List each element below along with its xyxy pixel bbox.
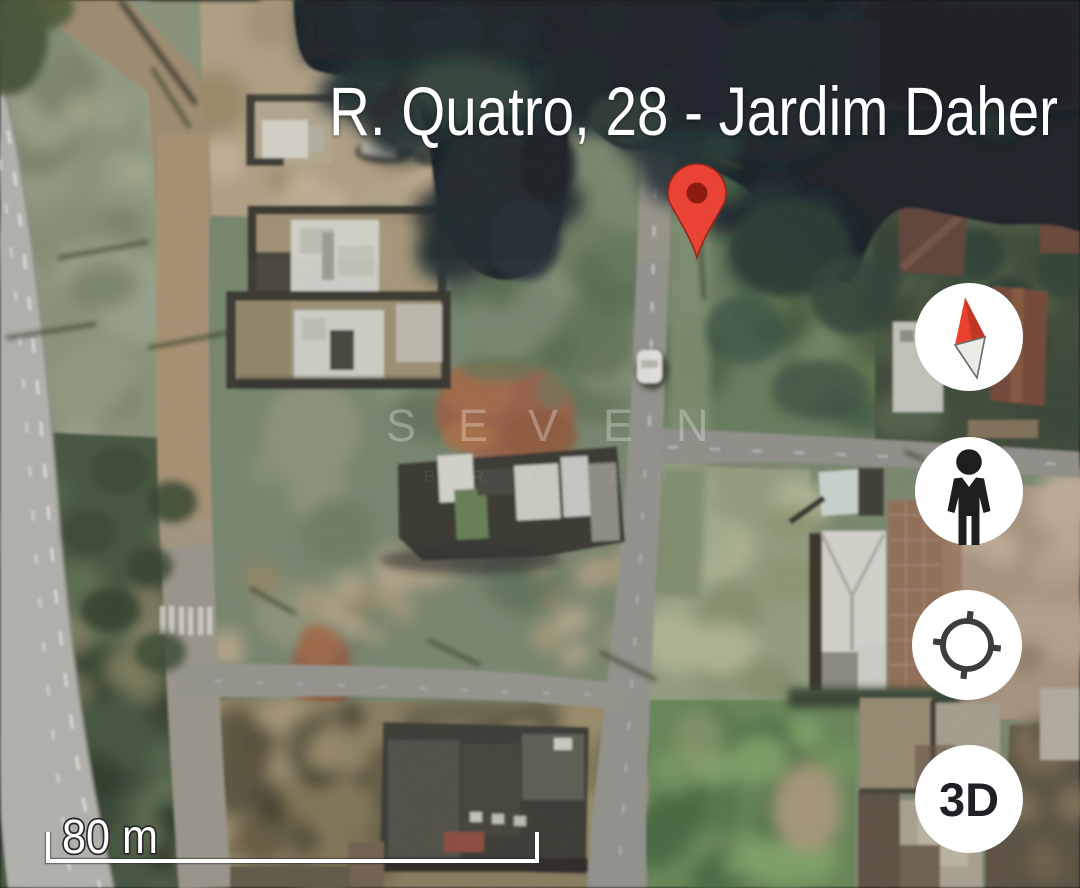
svg-text:R: R xyxy=(656,467,668,486)
svg-text:R. Quatro, 28 - Jardim Daher: R. Quatro, 28 - Jardim Daher xyxy=(329,73,1058,150)
svg-text:O: O xyxy=(518,467,531,486)
svg-text:3D: 3D xyxy=(939,773,999,826)
svg-text:B: B xyxy=(424,467,435,486)
svg-text:V: V xyxy=(528,400,558,451)
svg-text:E: E xyxy=(603,400,633,451)
svg-text:K: K xyxy=(564,467,576,486)
svg-text:E: E xyxy=(458,400,488,451)
svg-text:N: N xyxy=(676,400,709,451)
svg-text:E: E xyxy=(610,467,621,486)
svg-text:R: R xyxy=(472,467,484,486)
svg-text:80 m: 80 m xyxy=(62,811,158,864)
svg-text:S: S xyxy=(386,400,416,451)
